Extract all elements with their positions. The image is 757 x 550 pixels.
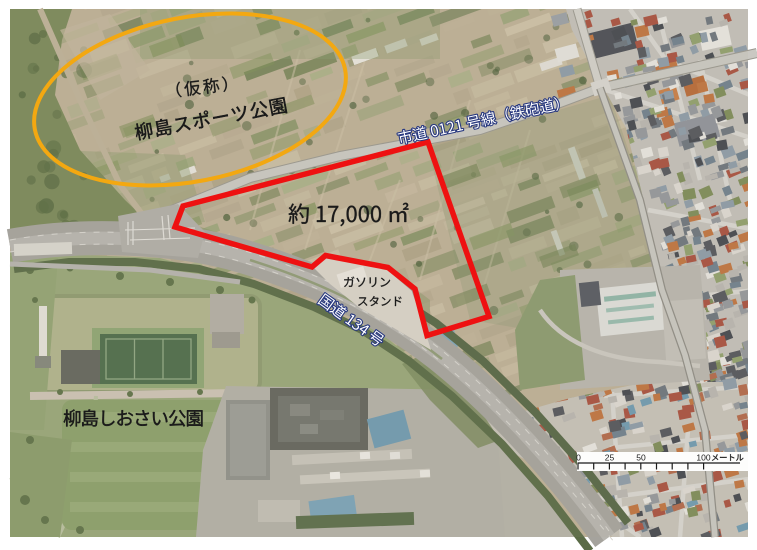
svg-text:0: 0 <box>576 453 581 463</box>
svg-text:25: 25 <box>605 453 615 463</box>
svg-text:100: 100 <box>696 453 710 463</box>
svg-text:50: 50 <box>636 453 646 463</box>
